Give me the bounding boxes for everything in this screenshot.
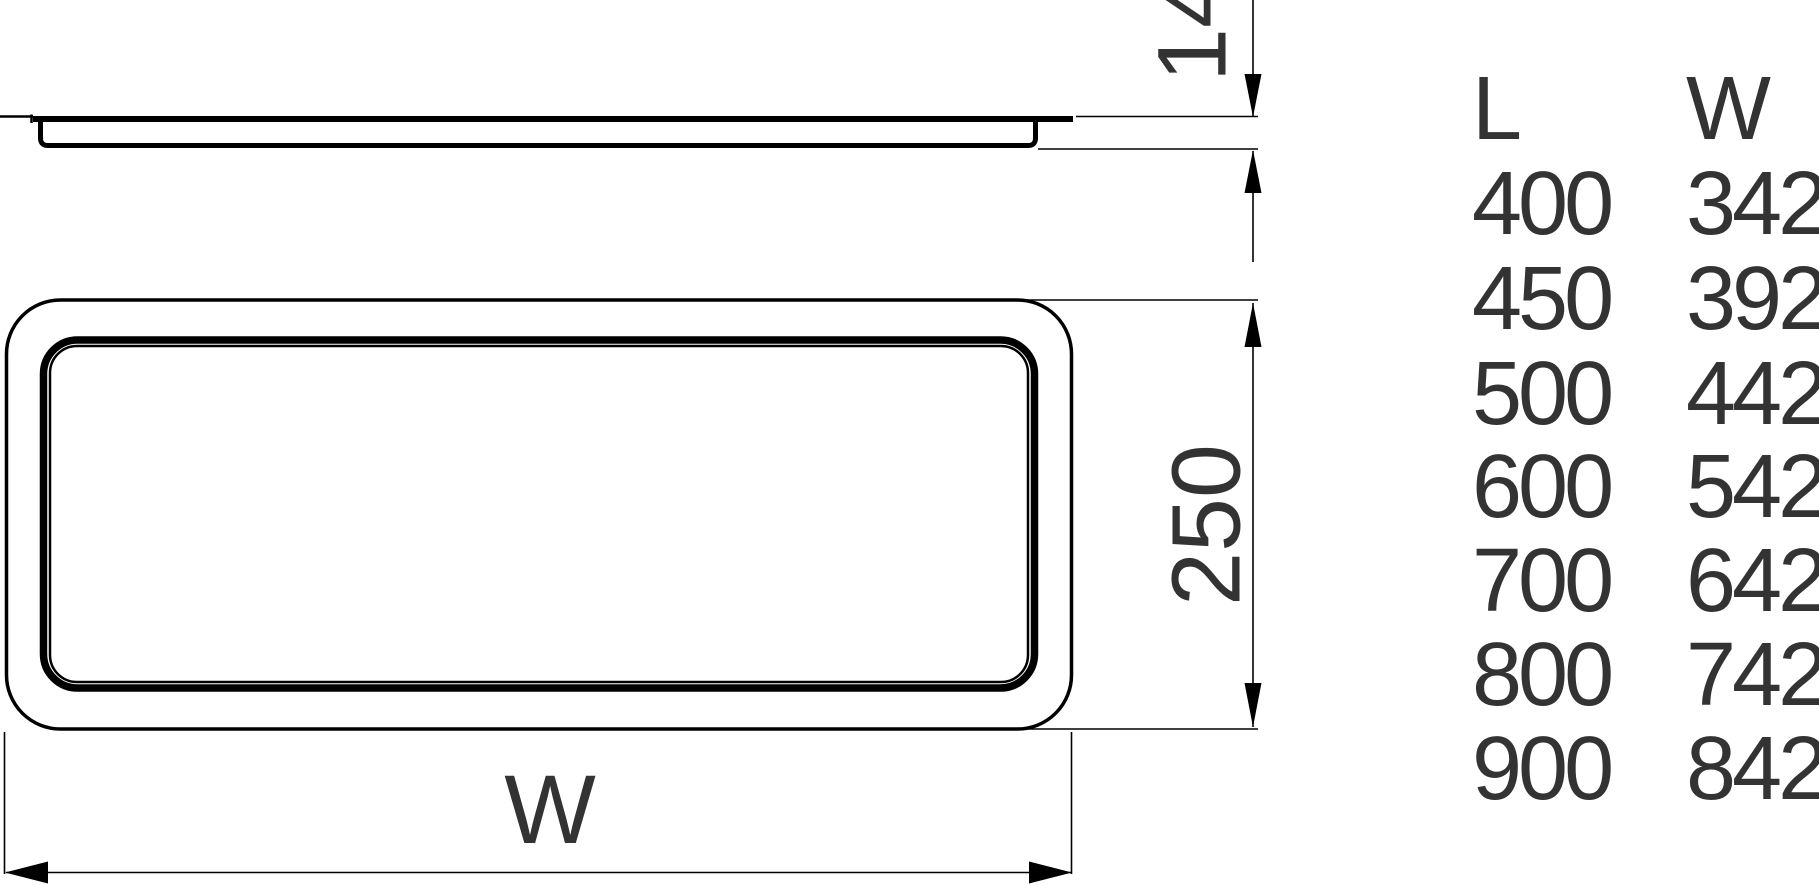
table-row: 500 442 (1472, 344, 1819, 444)
table-cell-w: 342 (1686, 154, 1819, 254)
table-row: 800 742 (1472, 625, 1819, 725)
plan-view-recess-opening-edge (44, 340, 1035, 688)
tray-dimension-drawing: 14 250 W L W (0, 0, 1819, 885)
arrow-up-icon (1245, 150, 1262, 193)
table-cell-l: 900 (1472, 719, 1611, 819)
table-row: 600 542 (1472, 437, 1819, 537)
table-row: 900 842 (1472, 719, 1819, 819)
plan-view-recess-inner-line (50, 346, 1028, 682)
table-cell-l: 600 (1472, 437, 1611, 537)
arrow-down-icon (1245, 683, 1262, 727)
size-table-header-l: L (1472, 59, 1520, 159)
table-cell-l: 400 (1472, 154, 1611, 254)
size-table: L W 400 342 450 392 500 442 600 542 700 … (1472, 59, 1819, 819)
table-cell-w: 842 (1686, 719, 1819, 819)
table-cell-w: 392 (1686, 249, 1819, 349)
plan-view (7, 300, 1072, 729)
side-view-channel-profile (41, 122, 1036, 146)
dimension-thickness: 14 (1038, 0, 1262, 262)
thickness-dimension-label: 14 (1138, 0, 1247, 82)
table-row: 700 642 (1472, 531, 1819, 631)
arrow-left-icon (5, 862, 48, 884)
table-row: 450 392 (1472, 249, 1819, 349)
table-row: 400 342 (1472, 154, 1819, 254)
size-table-header-w: W (1686, 59, 1771, 159)
table-cell-w: 742 (1686, 625, 1819, 725)
arrow-right-icon (1029, 862, 1072, 884)
arrow-down-icon (1245, 74, 1262, 117)
table-cell-w: 442 (1686, 344, 1819, 444)
arrow-up-icon (1245, 303, 1262, 347)
dimension-width: W (5, 732, 1073, 884)
side-view (0, 115, 1073, 146)
table-cell-l: 700 (1472, 531, 1611, 631)
table-cell-l: 450 (1472, 249, 1611, 349)
table-cell-l: 500 (1472, 344, 1611, 444)
table-cell-w: 542 (1686, 437, 1819, 537)
depth-dimension-label: 250 (1152, 444, 1261, 606)
table-cell-w: 642 (1686, 531, 1819, 631)
width-dimension-label: W (504, 755, 596, 864)
plan-view-outer-edge (7, 300, 1072, 729)
dimension-depth: 250 (1020, 300, 1262, 729)
table-cell-l: 800 (1472, 625, 1611, 725)
technical-drawing-canvas: 14 250 W L W (0, 0, 1819, 885)
